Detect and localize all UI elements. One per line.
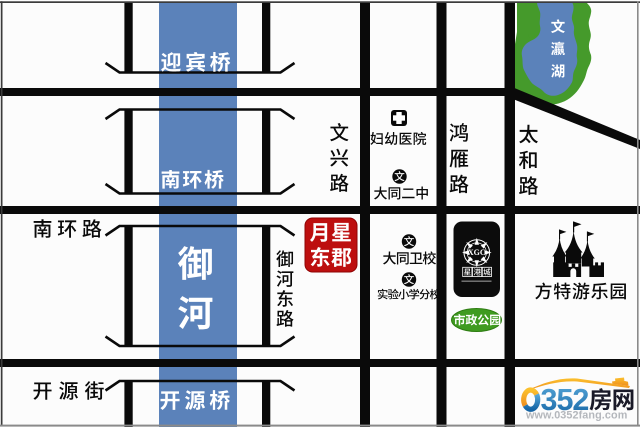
svg-text:XGC: XGC bbox=[468, 248, 486, 257]
svg-text:www.0352fang.com: www.0352fang.com bbox=[525, 410, 627, 422]
